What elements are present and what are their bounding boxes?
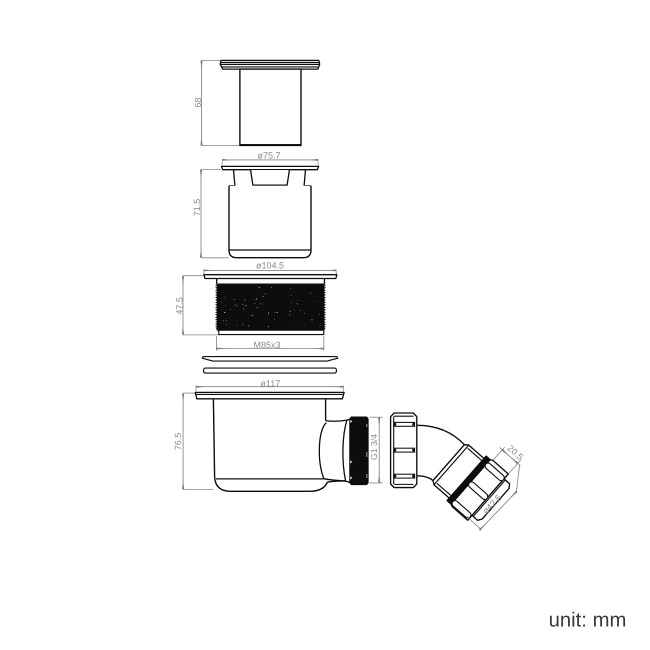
svg-text:68: 68 — [193, 98, 203, 108]
svg-text:unit: mm: unit: mm — [549, 609, 627, 631]
svg-text:ø75.7: ø75.7 — [257, 151, 280, 161]
svg-text:71.5: 71.5 — [192, 199, 202, 217]
svg-text:47.5: 47.5 — [174, 297, 184, 315]
svg-text:ø104.5: ø104.5 — [256, 260, 284, 270]
svg-text:M85x3: M85x3 — [253, 340, 280, 350]
svg-text:G1 3/4: G1 3/4 — [369, 434, 379, 460]
svg-text:76.5: 76.5 — [173, 433, 183, 451]
